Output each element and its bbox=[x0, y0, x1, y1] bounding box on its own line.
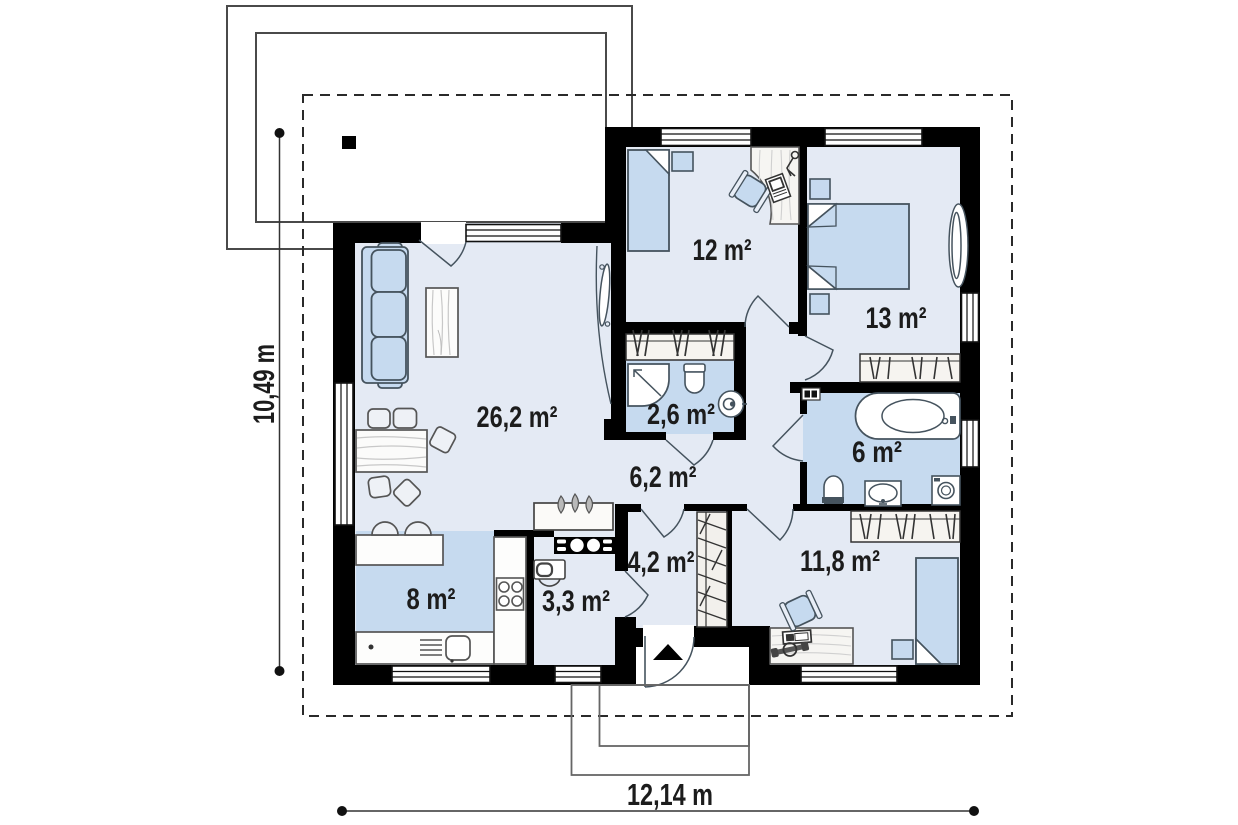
svg-text:3,3 m²: 3,3 m² bbox=[542, 585, 610, 618]
svg-text:11,8 m²: 11,8 m² bbox=[800, 545, 880, 578]
svg-text:8 m²: 8 m² bbox=[407, 583, 456, 616]
svg-text:10,49 m: 10,49 m bbox=[248, 344, 281, 424]
svg-text:12 m²: 12 m² bbox=[693, 234, 752, 267]
svg-text:13 m²: 13 m² bbox=[866, 302, 927, 335]
svg-text:4,2 m²: 4,2 m² bbox=[628, 546, 695, 579]
svg-text:6 m²: 6 m² bbox=[852, 436, 902, 469]
svg-text:12,14 m: 12,14 m bbox=[627, 777, 713, 812]
svg-text:2,6 m²: 2,6 m² bbox=[647, 399, 715, 431]
svg-text:26,2 m²: 26,2 m² bbox=[477, 401, 558, 434]
svg-text:6,2 m²: 6,2 m² bbox=[630, 461, 697, 494]
